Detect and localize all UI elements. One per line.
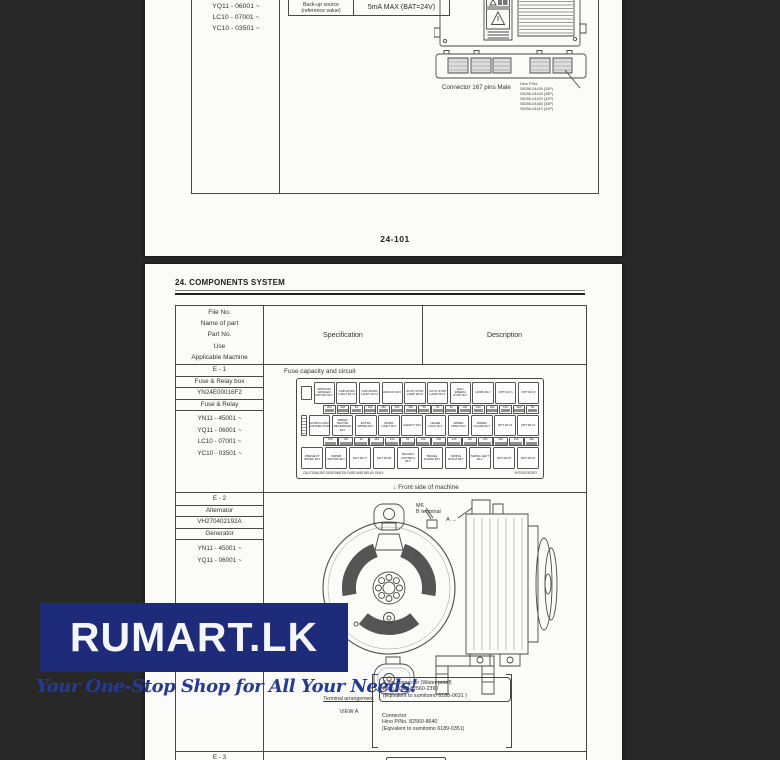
relay-cell: OPT RLY1	[495, 382, 516, 404]
relay-row-bottom: PREVENT SPARK RLYWIPER MOTOR RLYOPT RLY7…	[301, 447, 539, 469]
relay-cell: CAB WORK LIGHT RLY2	[359, 382, 380, 404]
fuse-cell: 5A	[445, 405, 458, 414]
relay-cell: EXTRA WIPER RLY	[355, 415, 377, 437]
vertical-fuse-column	[301, 415, 307, 437]
body-column-divider	[263, 364, 264, 760]
fuse-cell: 15A	[404, 405, 417, 414]
relay-cell: WIPER CLOSE RLY	[471, 415, 493, 437]
hino-pns-list: S8256-04430 (34P)S8256-04440 (35P)S8256-…	[520, 87, 570, 112]
relay-row-top: WINDOW WASHER MOTOR RLYCAB WORK LIGHT RL…	[301, 382, 539, 404]
fuse-cell: 10A	[458, 405, 471, 414]
fuse-diagram-code: YHT00101E3P2	[514, 471, 537, 475]
relay-cell: CAB WORK LIGHT RLY1	[336, 382, 357, 404]
fuse-caution-row: CAUTION/USE DESIGNATED FUSE AND RELAY ON…	[301, 471, 539, 475]
machine-number: LC10 - 07001 ~	[176, 436, 263, 448]
fuse-cell: 5A	[526, 405, 539, 414]
connector-caption: Connector 167 pins Male	[442, 84, 511, 91]
fuse-cell: 10A	[499, 405, 512, 414]
fuse-cell: 5A	[431, 405, 444, 414]
relay-cell: HORN RLY	[472, 382, 493, 404]
m6-terminal-label-line: B terminal	[416, 509, 441, 515]
fuse-cell: 25A	[369, 437, 384, 446]
fuse-cell: 20A	[323, 405, 336, 414]
e1-machine-list: YN11 - 45001 ~YQ11 - 06001 ~LC10 - 07001…	[176, 413, 263, 459]
top-machine-list: YQ11 - 06001 ~LC10 - 07001 ~YC10 - 03501…	[196, 1, 276, 35]
fuse-cell: 10A	[472, 405, 485, 414]
relay-cell: OPT RLY3	[494, 415, 516, 437]
fuse-caution-text: CAUTION/USE DESIGNATED FUSE AND RELAY ON…	[303, 471, 384, 475]
relay-cell: LEVER LOCK RLY	[425, 415, 447, 437]
ecu-connector-figure	[434, 0, 594, 92]
fuse-cell: 10A	[509, 437, 524, 446]
hino-part-numbers: Hino P/Ns. S8256-04430 (34P)S8256-04440 …	[520, 82, 570, 111]
header-line: Part No.	[176, 329, 263, 340]
relay-cell: OPT RLY2	[518, 382, 539, 404]
machine-number: YN11 - 45001 ~	[176, 413, 263, 425]
machine-number: YQ11 - 06001 ~	[176, 555, 263, 567]
fuse-cell: 25A	[364, 405, 377, 414]
header-line: Name of part	[176, 318, 263, 329]
rumart-logo: RUMART.LK	[40, 603, 348, 672]
machine-number: LC10 - 07001 ~	[196, 12, 276, 23]
connector-note-line: Hino P/No. 82560-8640	[382, 719, 506, 726]
a-leader-line	[458, 508, 472, 518]
relay-cell: WIPER MOTOR RLY	[325, 447, 347, 469]
backup-source-label: Back-up source(reference value)	[289, 0, 354, 15]
header-line: File No.	[176, 307, 263, 318]
top-table-border: YQ11 - 06001 ~LC10 - 07001 ~YC10 - 03501…	[191, 0, 599, 194]
hino-part-number: S8256-04410 (31P)	[520, 107, 570, 112]
fuse-cell: 15A	[323, 437, 338, 446]
machine-number: YQ11 - 06001 ~	[196, 1, 276, 12]
section-title: 24. COMPONENTS SYSTEM	[175, 278, 285, 287]
front-side-note: ↓ Front side of machine	[346, 484, 506, 491]
relay-cell: DOWN LOAD CONNECTOR	[309, 415, 331, 437]
fuse-cell: 10A	[385, 437, 400, 446]
fuse-cell: 10A	[416, 437, 431, 446]
machine-number: YC10 - 03501 ~	[176, 448, 263, 460]
rumart-tagline: Your One-Stop Shop for All Your Needs!	[36, 676, 366, 697]
rumart-logo-text: RUMART.LK	[70, 614, 318, 661]
machine-number: YQ11 - 06001 ~	[176, 425, 263, 437]
fuse-cell: 5A	[418, 405, 431, 414]
relay-cell: TRAVEL ALARM RLY	[421, 447, 443, 469]
relay-cell: OPT RLY4	[517, 415, 539, 437]
viewer-background: { "colors": { "background": "#282828", "…	[0, 0, 780, 760]
fuse-relay-box-diagram: WINDOW WASHER MOTOR RLYCAB WORK LIGHT RL…	[296, 378, 544, 479]
fuse-cell: 5A	[400, 437, 415, 446]
relay-cell: AUTO STOP LAMP RLY1	[427, 382, 448, 404]
machine-number: YN11 - 45001 ~	[176, 543, 263, 555]
header-line: Applicable Machine	[176, 352, 263, 363]
e1-use: Fuse & Relay	[176, 399, 263, 412]
header-specification: Specification	[264, 306, 423, 364]
relay-cell: AIRCON RLY	[382, 382, 403, 404]
fuse-cell: 10A	[447, 437, 462, 446]
fuse-cell: 15A	[391, 405, 404, 414]
e2-machine-list: YN11 - 45001 ~YQ11 - 06001 ~	[176, 543, 263, 566]
machine-number: YC10 - 03501 ~	[196, 23, 276, 34]
fuse-cell: 20A	[337, 405, 350, 414]
e2-use: Generator	[176, 528, 263, 541]
fuse-cell: 10A	[338, 437, 353, 446]
connector-note-2: ConnectorHino P/No. 82560-8640(Eqivalent…	[379, 711, 509, 734]
relay-cell: WIPER MOTOR REVERSING RLY	[332, 415, 354, 437]
document-scroll-area[interactable]: YQ11 - 06001 ~LC10 - 07001 ~YC10 - 03501…	[0, 0, 780, 760]
fuse-cell: 25A	[377, 405, 390, 414]
manual-page-top: YQ11 - 06001 ~LC10 - 07001 ~YC10 - 03501…	[145, 0, 622, 256]
relay-cell: OPT RLY8	[373, 447, 395, 469]
relay-cell: WIPER OPEN RLY	[448, 415, 470, 437]
fuse-cell: 15A	[478, 437, 493, 446]
fuse-strip-2: 15A10A5A25A10A5A10A20A10A10A15A10A10A20A	[323, 437, 539, 446]
backup-source-label-line: (reference value)	[289, 8, 353, 14]
small-connector-box	[301, 386, 312, 400]
fuse-cell: 20A	[431, 437, 446, 446]
fuse-diagram-label: Fuse capacity and circuit	[284, 368, 356, 375]
relay-cell: OPT RLY7	[349, 447, 371, 469]
relay-cell: SAFETY RLY	[401, 415, 423, 437]
header-description: Description	[423, 306, 586, 364]
fuse-cell: 10A	[462, 437, 477, 446]
relay-cell: SWING RIGHT RLY	[445, 447, 467, 469]
page-number: 24-101	[295, 234, 495, 244]
m6-terminal-label: M6B terminal	[416, 503, 441, 516]
backup-source-row: Back-up source(reference value) 5mA MAX …	[288, 0, 450, 16]
relay-cell: OPT RLY6	[517, 447, 539, 469]
relay-cell: ENG EMERG STOP RLY	[450, 382, 471, 404]
fuse-cell: 20A	[513, 405, 526, 414]
connector-note-line: (Eqivalent to sumitomo 6189-0351)	[382, 726, 506, 733]
relay-cell: WORK LIGHT RLY	[378, 415, 400, 437]
header-file-no-cell: File No.Name of partPart No.UseApplicabl…	[176, 306, 264, 364]
relay-cell: AUTO STOP LAMP RLY2	[404, 382, 425, 404]
section-title-rule	[175, 290, 585, 295]
fuse-cell: 10A	[493, 437, 508, 446]
fuse-strip-1: 20A20A5A25A25A15A15A5A5A5A10A10A10A10A20…	[323, 405, 539, 414]
relay-cell: OPT RLY5	[493, 447, 515, 469]
fuse-cell: 5A	[350, 405, 363, 414]
header-line: Use	[176, 341, 263, 352]
connector-note-line: Connector	[382, 713, 506, 720]
e3-file-no: E - 3	[176, 752, 263, 760]
relay-cell: WINDOW WASHER MOTOR RLY	[314, 382, 335, 404]
top-table-column-divider	[279, 0, 280, 193]
fuse-cell: 20A	[524, 437, 539, 446]
fuse-cell: 10A	[486, 405, 499, 414]
relay-cell: SWING LEFT RLY	[469, 447, 491, 469]
table-header-row: File No.Name of partPart No.UseApplicabl…	[176, 306, 586, 365]
relay-row-middle: DOWN LOAD CONNECTORWIPER MOTOR REVERSING…	[301, 415, 539, 437]
relay-cell: PREVENT SPARK RLY	[301, 447, 323, 469]
relay-cell: BUCKET CONTROL RLY	[397, 447, 419, 469]
fuse-cell: 5A	[354, 437, 369, 446]
view-a-pointer-label: A →	[446, 517, 457, 523]
